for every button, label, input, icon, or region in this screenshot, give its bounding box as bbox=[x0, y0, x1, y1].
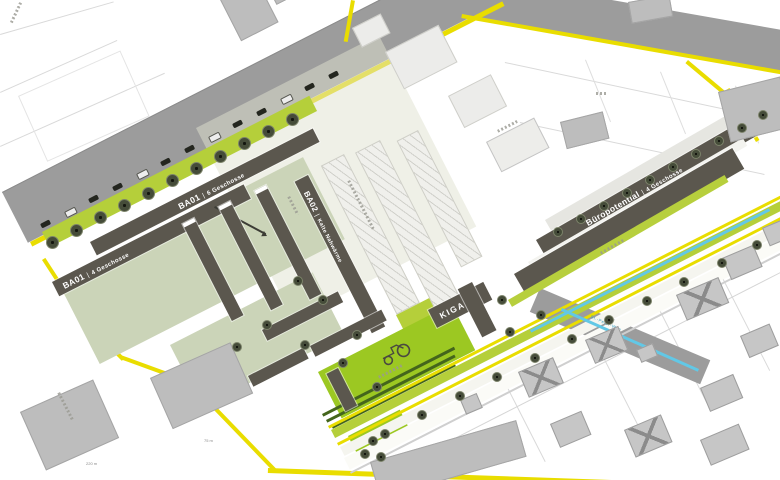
tree bbox=[642, 296, 652, 306]
tree bbox=[417, 410, 427, 420]
dimension-label: 220 m bbox=[86, 461, 97, 466]
tree bbox=[752, 240, 762, 250]
tree bbox=[380, 429, 390, 439]
tree bbox=[717, 258, 727, 268]
parcel-line bbox=[660, 72, 686, 134]
house bbox=[700, 374, 743, 412]
existing-building bbox=[20, 379, 119, 470]
tree bbox=[714, 136, 724, 146]
house bbox=[740, 323, 779, 358]
tree bbox=[262, 320, 272, 330]
tree bbox=[293, 276, 303, 286]
tree bbox=[70, 224, 83, 237]
micro-text bbox=[596, 92, 606, 95]
existing-building bbox=[213, 0, 279, 41]
tree bbox=[118, 199, 131, 212]
tree bbox=[262, 125, 275, 138]
tree bbox=[691, 149, 701, 159]
existing-building bbox=[718, 77, 780, 143]
house bbox=[550, 411, 591, 448]
tree bbox=[679, 277, 689, 287]
house bbox=[624, 414, 673, 457]
tree bbox=[94, 211, 107, 224]
parcel-line bbox=[717, 268, 770, 371]
site-plan: BA01|6 Geschosse BA01|4 Geschosse BA02|K… bbox=[0, 0, 780, 480]
existing-building-outline bbox=[448, 74, 507, 128]
tree bbox=[737, 123, 747, 133]
tree bbox=[497, 295, 507, 305]
tree bbox=[576, 214, 586, 224]
tree bbox=[668, 162, 678, 172]
tree bbox=[455, 391, 465, 401]
dimension-label: 75 m bbox=[204, 438, 213, 443]
tree bbox=[214, 150, 227, 163]
tree bbox=[232, 342, 242, 352]
tree bbox=[166, 174, 179, 187]
tree bbox=[338, 358, 348, 368]
tree bbox=[238, 137, 251, 150]
tree bbox=[553, 227, 563, 237]
tree bbox=[286, 113, 299, 126]
tree bbox=[190, 162, 203, 175]
tree bbox=[622, 188, 632, 198]
tree bbox=[360, 449, 370, 459]
tree bbox=[599, 201, 609, 211]
tree bbox=[376, 452, 386, 462]
tree bbox=[46, 236, 59, 249]
tree bbox=[372, 382, 382, 392]
tree bbox=[300, 340, 310, 350]
tree bbox=[368, 436, 378, 446]
tree bbox=[318, 295, 328, 305]
tree bbox=[567, 334, 577, 344]
tree bbox=[492, 372, 502, 382]
existing-building bbox=[272, 0, 294, 5]
tree bbox=[758, 110, 768, 120]
tree bbox=[645, 175, 655, 185]
micro-text bbox=[10, 2, 22, 23]
existing-building bbox=[560, 111, 609, 149]
house bbox=[700, 424, 750, 466]
tree bbox=[352, 330, 362, 340]
tree bbox=[530, 353, 540, 363]
tree bbox=[536, 310, 546, 320]
tree bbox=[142, 187, 155, 200]
tree bbox=[604, 315, 614, 325]
tree bbox=[505, 327, 515, 337]
